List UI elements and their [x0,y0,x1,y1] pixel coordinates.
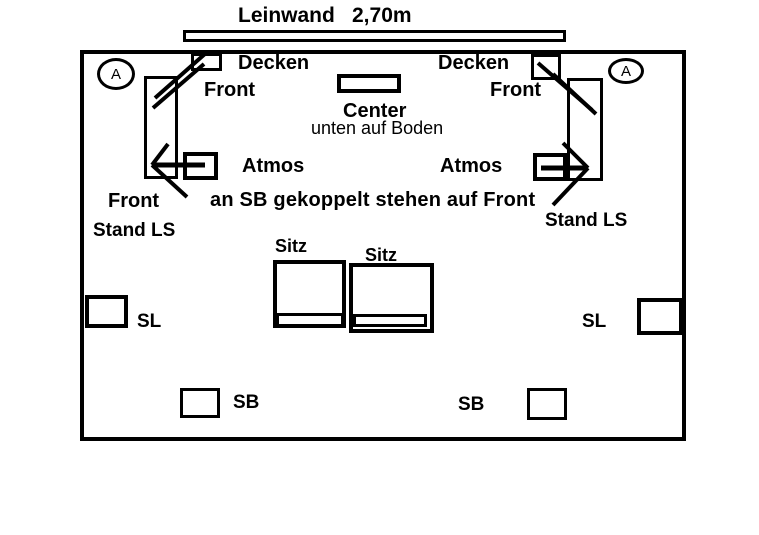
surround-right-label: SL [582,312,606,331]
atmos-note: an SB gekoppelt stehen auf Front [210,190,535,210]
ceiling-speaker-right-rect [531,54,561,80]
corner-marker-right: A [608,58,644,84]
surround-left-label: SL [137,312,161,331]
seat-right-cushion-rect [353,314,427,327]
atmos-left-label: Atmos [242,156,304,176]
center-note: unten auf Boden [311,119,443,137]
corner-marker-left: A [97,58,135,90]
atmos-right-label: Atmos [440,156,502,176]
speaker-layout-diagram: A A Leinwand 2,70m Deck [0,0,759,535]
ceiling-speaker-left-rect [191,53,222,71]
front-top-right-label: Front [490,80,541,100]
seat-left-cushion-rect [276,313,344,327]
screen-width-label: 2,70m [352,5,412,26]
ceiling-left-label: Decken [238,53,309,73]
front-top-left-label: Front [204,80,255,100]
seat-right-label: Sitz [365,246,397,264]
screen-rect [183,30,566,42]
surround-right-rect [637,298,683,335]
front-stand-left-label: Front [108,191,159,211]
surround-back-right-label: SB [458,395,484,414]
stand-ls-right-label: Stand LS [545,211,627,230]
atmos-left-rect [183,152,218,180]
center-speaker-rect [337,74,401,93]
surround-left-rect [85,295,128,328]
surround-back-right-rect [527,388,567,420]
stand-ls-left-label: Stand LS [93,221,175,240]
atmos-right-rect [533,153,567,181]
corner-marker-right-label: A [621,63,631,80]
seat-left-label: Sitz [275,237,307,255]
surround-back-left-label: SB [233,393,259,412]
corner-marker-left-label: A [111,66,121,83]
front-tower-right-rect [567,78,603,181]
ceiling-right-label: Decken [438,53,509,73]
screen-label: Leinwand [238,5,335,26]
surround-back-left-rect [180,388,220,418]
front-tower-left-rect [144,76,178,179]
